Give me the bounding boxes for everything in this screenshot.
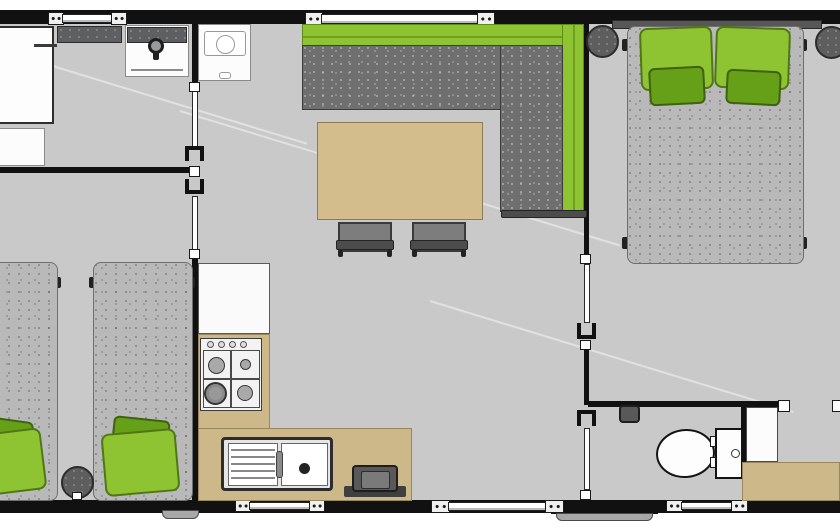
wc-opening-connector-left bbox=[778, 400, 790, 412]
nightstand-left bbox=[586, 25, 619, 58]
wc-door-handle bbox=[580, 490, 591, 500]
toilet-flush-button bbox=[731, 449, 740, 458]
bedroom-door-pocket bbox=[577, 323, 596, 339]
twin-room-door-pocket bbox=[185, 179, 204, 194]
washbasin-tap-stem bbox=[153, 51, 159, 60]
drainboard-line bbox=[231, 456, 275, 458]
stove-knob bbox=[218, 341, 225, 348]
stove-knob bbox=[207, 341, 214, 348]
burner-top-left bbox=[208, 357, 225, 374]
stove-knob bbox=[229, 341, 236, 348]
bedside-stool-detail bbox=[72, 492, 82, 500]
side-step bbox=[162, 510, 199, 519]
chair-2-leg bbox=[461, 250, 466, 257]
chair-2-leg bbox=[412, 250, 417, 257]
window-3-pane bbox=[249, 502, 311, 510]
stove-knob bbox=[240, 341, 247, 348]
dining-table bbox=[317, 122, 483, 220]
wardrobe-rail bbox=[34, 44, 57, 47]
drainboard-line bbox=[231, 463, 275, 465]
bedroom-door-handle-top bbox=[580, 254, 591, 264]
wc-open-door bbox=[746, 407, 778, 462]
nightstand-right bbox=[815, 26, 840, 59]
burner-bottom-right bbox=[237, 385, 253, 401]
burner-grid-hline bbox=[203, 378, 260, 380]
bedroom-sliding-door bbox=[584, 264, 590, 323]
sofa-seat bbox=[302, 45, 501, 110]
sofa-backrest-right-line bbox=[573, 25, 575, 214]
wc-door-pocket bbox=[577, 410, 596, 426]
bedroom-divider-wall-mid bbox=[584, 348, 589, 405]
window-4-bracket-right bbox=[545, 500, 564, 513]
twin-room-door-handle bbox=[189, 249, 200, 259]
washbasin-edge-line bbox=[131, 69, 183, 71]
gas-unit-inner bbox=[361, 471, 390, 489]
sink-drain bbox=[299, 463, 310, 474]
pillow-right-small bbox=[725, 69, 782, 107]
sofa-backrest-top bbox=[302, 24, 584, 46]
window-1-bracket-right bbox=[111, 12, 127, 25]
window-3-bracket-right bbox=[309, 500, 325, 512]
wc-opening-connector-right bbox=[832, 400, 840, 412]
drainboard-line bbox=[231, 470, 275, 472]
pillow-left-small bbox=[648, 66, 706, 107]
chair-1-leg bbox=[338, 250, 343, 257]
window-5-bracket-right bbox=[731, 500, 748, 512]
bathroom-counter bbox=[57, 26, 122, 43]
burner-top-right bbox=[240, 359, 251, 370]
twin-left-pillow-front bbox=[0, 427, 48, 497]
bedroom-divider-wall-upper bbox=[584, 24, 589, 257]
chair-2-backrest bbox=[410, 240, 468, 250]
entry-step bbox=[556, 513, 653, 521]
wall-junction-connector bbox=[189, 166, 200, 177]
bathroom-divider-wall bbox=[0, 167, 197, 173]
window-5-pane bbox=[681, 502, 733, 510]
window-4-pane bbox=[448, 502, 547, 511]
floorplan-canvas bbox=[0, 0, 840, 530]
fridge-dial bbox=[216, 35, 235, 54]
chair-1-leg bbox=[387, 250, 392, 257]
bathroom-door-handle bbox=[189, 82, 200, 92]
wardrobe bbox=[0, 26, 54, 124]
storage-cabinet bbox=[0, 128, 45, 166]
wc-counter bbox=[742, 462, 840, 501]
sofa-armrest bbox=[501, 210, 587, 218]
burner-bottom-left bbox=[204, 382, 227, 405]
drainboard-line bbox=[231, 449, 275, 451]
toilet-paper-holder bbox=[619, 405, 640, 423]
sink-faucet bbox=[276, 451, 283, 478]
twin-right-pillow-front bbox=[100, 428, 180, 497]
bathroom-door-pocket bbox=[185, 146, 204, 161]
window-2-pane bbox=[321, 14, 479, 24]
kitchen-worktop bbox=[198, 263, 270, 334]
drainboard-line bbox=[231, 477, 275, 479]
sofa-chaise bbox=[500, 45, 563, 212]
sofa-backrest-top-line bbox=[303, 36, 583, 38]
bathroom-sliding-door bbox=[192, 90, 198, 148]
window-1-pane bbox=[62, 14, 114, 23]
wc-sliding-door bbox=[584, 428, 590, 490]
twin-room-sliding-door bbox=[192, 196, 198, 252]
chair-1-backrest bbox=[336, 240, 394, 250]
fridge-latch bbox=[219, 72, 231, 79]
bedroom-door-handle-bottom bbox=[580, 340, 591, 350]
